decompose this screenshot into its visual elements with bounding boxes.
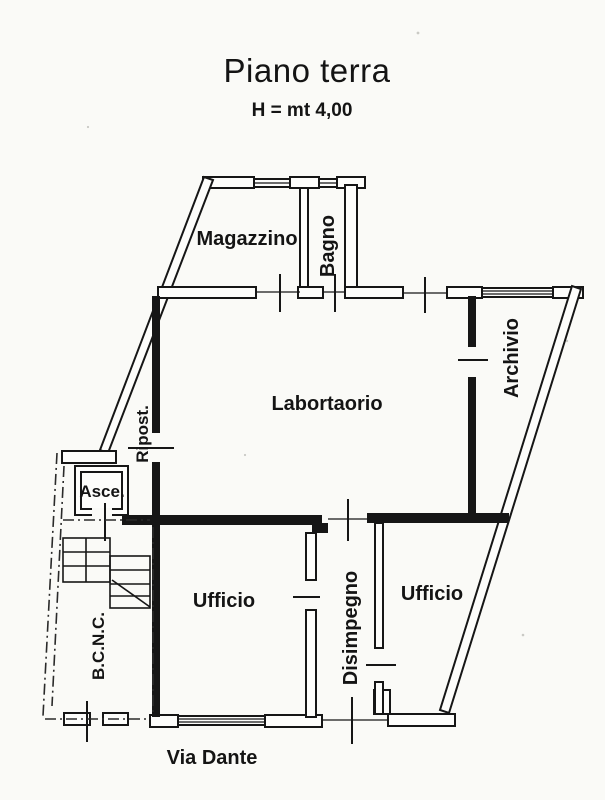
ascensore-door-gap xyxy=(92,508,112,517)
wall-disimpegno-west-upper xyxy=(306,533,316,580)
wall-laboratorio-south-east xyxy=(367,513,509,523)
window-top-b xyxy=(319,179,337,187)
staircase xyxy=(63,538,150,608)
window-top-a xyxy=(254,179,290,187)
wall-disimpegno-west-lower xyxy=(306,610,316,717)
label-street: Via Dante xyxy=(167,747,258,769)
wall-step-pilaster xyxy=(312,523,328,533)
boundary-slant-outer xyxy=(43,453,57,716)
label-bagno: Bagno xyxy=(317,215,339,277)
wall-disimpegno-east-lower xyxy=(375,682,383,714)
floor-plan-page: Piano terra H = mt 4,00 xyxy=(0,0,605,800)
wall-bottom-right xyxy=(388,714,455,726)
window-ufficio-sx xyxy=(178,716,265,725)
windows xyxy=(178,179,553,725)
label-magazzino: Magazzino xyxy=(196,228,297,250)
label-bcnc: B.C.N.C. xyxy=(89,612,108,680)
label-ripostiglio: Ripost. xyxy=(133,405,152,463)
wall-ripostiglio-upper xyxy=(152,296,160,433)
label-ufficio-dx: Ufficio xyxy=(401,583,463,605)
wall-magazzino-south xyxy=(158,287,256,298)
floor-plan-drawing: Piano terra H = mt 4,00 xyxy=(0,0,605,800)
label-laboratorio: Labortaorio xyxy=(271,393,382,415)
wall-archivio-divider-lower xyxy=(468,377,476,515)
ceiling-height-note: H = mt 4,00 xyxy=(252,100,353,121)
label-ufficio-sx: Ufficio xyxy=(193,590,255,612)
wall-ascensore-cap xyxy=(62,451,116,463)
label-archivio: Archivio xyxy=(501,318,523,398)
wall-top-b xyxy=(290,177,319,188)
page-title: Piano terra xyxy=(224,52,391,89)
label-ascensore: Asce. xyxy=(79,482,124,501)
wall-archivio-sill xyxy=(447,287,482,298)
wall-disimpegno-east-upper xyxy=(375,523,383,648)
window-archivio xyxy=(482,288,553,297)
wall-archivio-divider-upper xyxy=(468,296,476,347)
wall-bagno-south xyxy=(345,287,403,298)
wall-ripostiglio-lower xyxy=(152,462,160,517)
wall-bagno-west xyxy=(300,188,308,287)
wall-bagno-sill xyxy=(298,287,323,298)
wall-bagno-east xyxy=(345,185,357,290)
label-disimpegno: Disimpegno xyxy=(340,571,362,685)
